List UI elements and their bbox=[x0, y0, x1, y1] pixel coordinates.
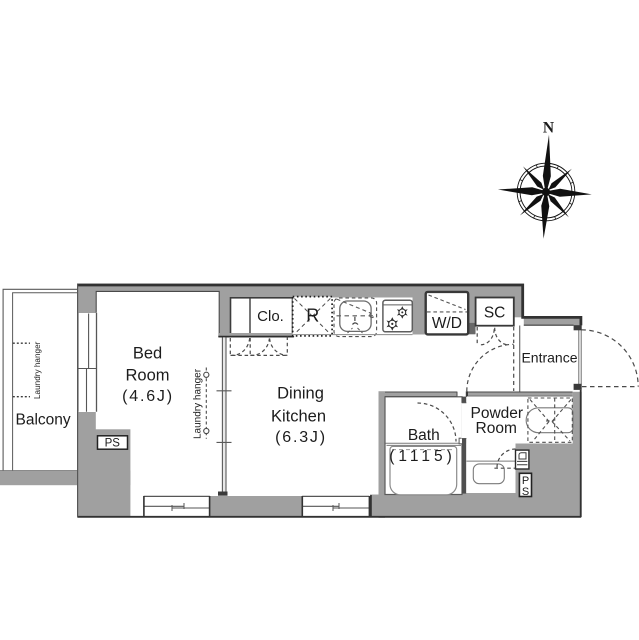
svg-text:Dining: Dining bbox=[277, 384, 324, 402]
svg-text:Entrance: Entrance bbox=[521, 350, 577, 366]
svg-text:Laundry hanger: Laundry hanger bbox=[33, 341, 42, 399]
svg-text:S: S bbox=[522, 486, 529, 498]
svg-text:Bath: Bath bbox=[408, 427, 440, 444]
svg-text:Laundry hanger: Laundry hanger bbox=[193, 368, 204, 439]
svg-text:(4.6J): (4.6J) bbox=[122, 388, 174, 405]
svg-text:Room: Room bbox=[476, 420, 517, 437]
svg-text:W/D: W/D bbox=[432, 315, 462, 332]
svg-text:Bed: Bed bbox=[133, 345, 162, 363]
svg-text:N: N bbox=[543, 119, 554, 136]
svg-text:R: R bbox=[306, 305, 319, 325]
svg-text:(6.3J): (6.3J) bbox=[275, 429, 327, 446]
svg-text:Kitchen: Kitchen bbox=[271, 407, 326, 425]
svg-text:PS: PS bbox=[105, 438, 121, 450]
svg-text:(1115): (1115) bbox=[389, 448, 456, 465]
svg-text:Clo.: Clo. bbox=[257, 308, 284, 325]
svg-text:SC: SC bbox=[484, 305, 506, 322]
svg-text:Balcony: Balcony bbox=[16, 412, 71, 429]
svg-text:Room: Room bbox=[125, 367, 169, 385]
